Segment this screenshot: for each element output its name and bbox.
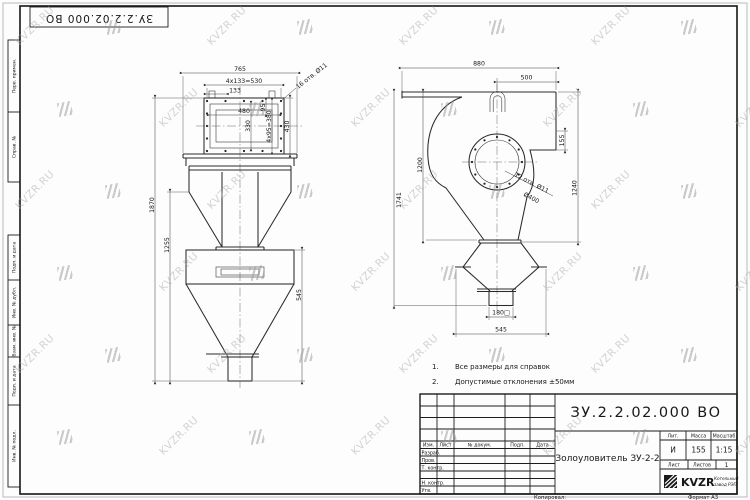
tb-mass-label: Масса (691, 434, 706, 440)
dim-front-hopper-height: 545 (296, 289, 303, 301)
dim-front-bolt-row-side: 4x95=380 (266, 110, 273, 143)
dim-side-hopper-width: 545 (495, 327, 507, 334)
dim-front-holes-note: 16 отв. Ø11 (294, 61, 329, 90)
notes: 1. Все размеры для справок 2. Допустимые… (432, 363, 574, 386)
front-view-dimensions: 765 4x133=530 133 16 отв. Ø11 480 330 95… (149, 61, 329, 381)
tb-row-nkontr: Н. контр. (422, 481, 445, 487)
tb-mass-value: 155 (691, 446, 706, 455)
dim-side-mid-height: 1741 (396, 192, 403, 208)
dim-front-bolt-row-top: 4x133=530 (226, 78, 262, 85)
note-number: 1. (432, 363, 439, 371)
dim-front-opening-width: 480 (238, 108, 250, 115)
note-text: Все размеры для справок (455, 363, 550, 371)
dim-front-opening-height: 330 (245, 120, 252, 132)
tb-sheet-label: Лист (668, 463, 680, 469)
front-view: 765 4x133=530 133 16 отв. Ø11 480 330 95… (149, 61, 329, 388)
drawing-canvas: Перв. примен. Справ. № Подп. и дата Инв.… (0, 0, 750, 500)
footer-copied-label: Копировал: (534, 495, 566, 500)
margin-cell-label: Перв. примен. (12, 59, 18, 94)
dim-side-right-height: 1240 (572, 180, 579, 196)
tb-lit-label: Лит. (667, 434, 678, 440)
margin-cell-label: Взам. инв. № (12, 325, 18, 356)
sheet-frame (3, 3, 747, 497)
dim-front-flange-height: 430 (284, 121, 291, 133)
margin-cell-label: Подп. и дата (12, 365, 18, 396)
tb-logo: KVZR Котельный завод РЭП (664, 475, 739, 489)
tb-col-doc: № докум. (468, 443, 492, 449)
tb-logo-text: KVZR (681, 476, 715, 489)
side-view-dimensions: 880 500 155 1240 1200 1741 12 отв. Ø11 Ø… (394, 61, 581, 338)
note-number: 2. (432, 378, 439, 386)
margin-cell-label: Инв. № подл. (12, 430, 18, 462)
dim-front-total-height: 1870 (149, 197, 156, 213)
dim-side-casing-height: 1200 (417, 157, 424, 173)
tb-col-data: Дата (536, 443, 548, 449)
margin-cell-label: Подп. и дата (12, 242, 18, 273)
tb-sheets-label: Листов (693, 463, 711, 469)
left-margin-column: Перв. примен. Справ. № Подп. и дата Инв.… (8, 40, 20, 487)
tb-doc-number: ЗУ.2.2.02.000 ВО (570, 405, 721, 421)
dim-side-flange-dia: Ø400 (522, 190, 541, 205)
top-stamp-doc-number: ЗУ.2.2.02.000 ВО (45, 12, 153, 24)
tb-row-utv: Утв. (422, 488, 432, 494)
dim-front-lower-height: 1255 (164, 237, 171, 253)
tb-logo-sub: завод РЭП (714, 482, 737, 487)
margin-cell-label: Справ. № (12, 136, 18, 159)
tb-col-izm: Изм. (423, 443, 434, 449)
tb-product-title: Золоуловитель ЗУ-2-2 (555, 454, 659, 464)
footer-format-label: Формат А3 (688, 495, 718, 500)
tb-scale-label: Масштаб (713, 434, 736, 440)
tb-row-prov: Пров. (422, 458, 436, 464)
tb-row-razrab: Разраб. (422, 451, 441, 457)
tb-row-tkontr: Т. контр. (421, 466, 444, 472)
dim-side-outlet-offset: 500 (521, 75, 533, 82)
dim-side-total-width: 880 (473, 61, 485, 68)
dim-front-total-width: 765 (234, 66, 246, 73)
tb-col-podp: Подп. (510, 443, 525, 449)
dim-side-holes-note: 12 отв. Ø11 (513, 171, 550, 195)
top-stamp: ЗУ.2.2.02.000 ВО (30, 7, 168, 27)
tb-scale-value: 1:15 (716, 446, 733, 455)
margin-cell-label: Инв. № дубл. (12, 287, 18, 318)
tb-col-list: Лист (439, 443, 451, 449)
tb-logo-sub: Котельный (714, 476, 739, 481)
tb-lit-value: И (670, 446, 676, 455)
tb-sheets-value: 1 (725, 462, 729, 469)
dim-front-bolt-pitch-top: 133 (229, 88, 241, 95)
note-text: Допустимые отклонения ±50мм (455, 378, 574, 386)
dim-side-flange-drop: 155 (559, 135, 566, 147)
drawing-sheet: Перв. примен. Справ. № Подп. и дата Инв.… (0, 0, 750, 500)
side-view: 880 500 155 1240 1200 1741 12 отв. Ø11 Ø… (394, 61, 581, 338)
dim-side-outlet-square: 180□ (492, 310, 510, 317)
dim-front-bolt-pitch-side: 95 (260, 104, 267, 112)
